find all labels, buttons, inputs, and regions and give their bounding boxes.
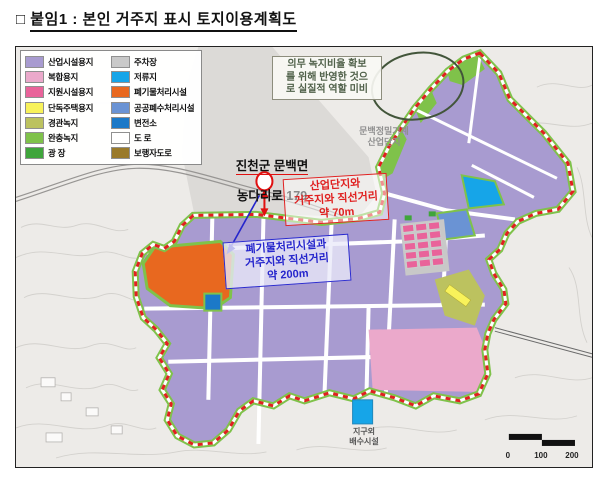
legend-swatch — [25, 71, 44, 83]
legend-item-industrial: 산업시설용지 — [25, 56, 107, 68]
legend-label: 저류지 — [134, 71, 157, 83]
scale-label-0: 0 — [506, 451, 511, 460]
railway-east — [495, 328, 592, 358]
legend-column-1: 산업시설용지 복합용지 지원시설용지 단독주택용지 경관녹지 완충녹지 광 장 — [25, 56, 107, 159]
legend-item-plaza: 광 장 — [25, 147, 107, 159]
legend-item-pedestrian-road: 보행자도로 — [111, 147, 197, 159]
land-use-map: 0 100 200 산업시설용지 복합용지 지원시설용지 단독주택용지 경관녹지… — [15, 46, 593, 468]
legend-label: 경관녹지 — [48, 117, 78, 129]
legend-label: 변전소 — [134, 117, 157, 129]
industrial-complex-label: 문백정밀기계 산업단지 — [334, 126, 434, 149]
scale-label-100: 100 — [534, 451, 548, 460]
document-page: □ 붙임1 : 본인 거주지 표시 토지이용계획도 — [0, 0, 600, 477]
legend-swatch — [25, 56, 44, 68]
legend-swatch — [111, 56, 130, 68]
legend-item-retention-pond: 저류지 — [111, 71, 197, 83]
title-checkbox-glyph: □ — [16, 11, 26, 28]
legend-swatch — [25, 117, 44, 129]
scale-bar: 0 100 200 — [506, 434, 580, 460]
legend-swatch — [25, 147, 44, 159]
village-buildings — [41, 378, 122, 442]
legend-label: 복합용지 — [48, 71, 78, 83]
scale-label-200: 200 — [565, 451, 579, 460]
legend-item-substation: 변전소 — [111, 117, 197, 129]
legend-swatch — [25, 102, 44, 114]
legend-item-waste-facility: 폐기물처리시설 — [111, 86, 197, 98]
legend-label: 단독주택용지 — [48, 102, 93, 114]
legend-label: 산업시설용지 — [48, 56, 93, 68]
legend-item-buffer-green: 완충녹지 — [25, 132, 107, 144]
legend-swatch — [25, 132, 44, 144]
legend-label: 주차장 — [134, 56, 157, 68]
legend-swatch — [111, 86, 130, 98]
region-mixed-use — [369, 328, 487, 392]
legend-swatch — [111, 71, 130, 83]
legend-swatch — [111, 147, 130, 159]
legend-label: 광 장 — [48, 147, 65, 159]
drainage-label: 지구외 배수시설 — [338, 427, 390, 447]
legend-item-road: 도 로 — [111, 132, 197, 144]
legend-column-2: 주차장 저류지 폐기물처리시설 공공폐수처리시설 변전소 도 로 보행자도로 — [111, 56, 197, 159]
legend-item-parking: 주차장 — [111, 56, 197, 68]
legend-swatch — [25, 86, 44, 98]
drainage-square — [353, 400, 373, 424]
title-text: 붙임1 : 본인 거주지 표시 토지이용계획도 — [30, 11, 296, 32]
green-space-note: 의무 녹지비율 확보 를 위해 반영한 것으 로 실질적 역할 미비 — [272, 56, 382, 100]
legend-swatch — [111, 102, 130, 114]
legend-item-housing: 단독주택용지 — [25, 102, 107, 114]
legend-item-wastewater-plant: 공공폐수처리시설 — [111, 102, 197, 114]
legend-label: 도 로 — [134, 132, 151, 144]
legend-label: 폐기물처리시설 — [134, 86, 187, 98]
legend-label: 지원시설용지 — [48, 86, 93, 98]
legend-swatch — [111, 117, 130, 129]
legend-item-landscape-green: 경관녹지 — [25, 117, 107, 129]
legend-label: 완충녹지 — [48, 132, 78, 144]
map-legend: 산업시설용지 복합용지 지원시설용지 단독주택용지 경관녹지 완충녹지 광 장 … — [20, 50, 202, 165]
legend-swatch — [111, 132, 130, 144]
industrial-distance-note: 산업단지와 거주지와 직선거리 약 70m — [283, 173, 390, 227]
address-line1: 진천군 문백면 — [236, 159, 308, 175]
region-support-facility-lots — [400, 219, 449, 275]
legend-label: 공공폐수처리시설 — [134, 102, 194, 114]
legend-item-support: 지원시설용지 — [25, 86, 107, 98]
waste-distance-note: 폐기물처리시설과 거주지와 직선거리 약 200m — [223, 234, 352, 290]
legend-item-mixed: 복합용지 — [25, 71, 107, 83]
region-substation — [204, 294, 221, 311]
legend-label: 보행자도로 — [134, 147, 172, 159]
page-title: □ 붙임1 : 본인 거주지 표시 토지이용계획도 — [16, 8, 297, 29]
